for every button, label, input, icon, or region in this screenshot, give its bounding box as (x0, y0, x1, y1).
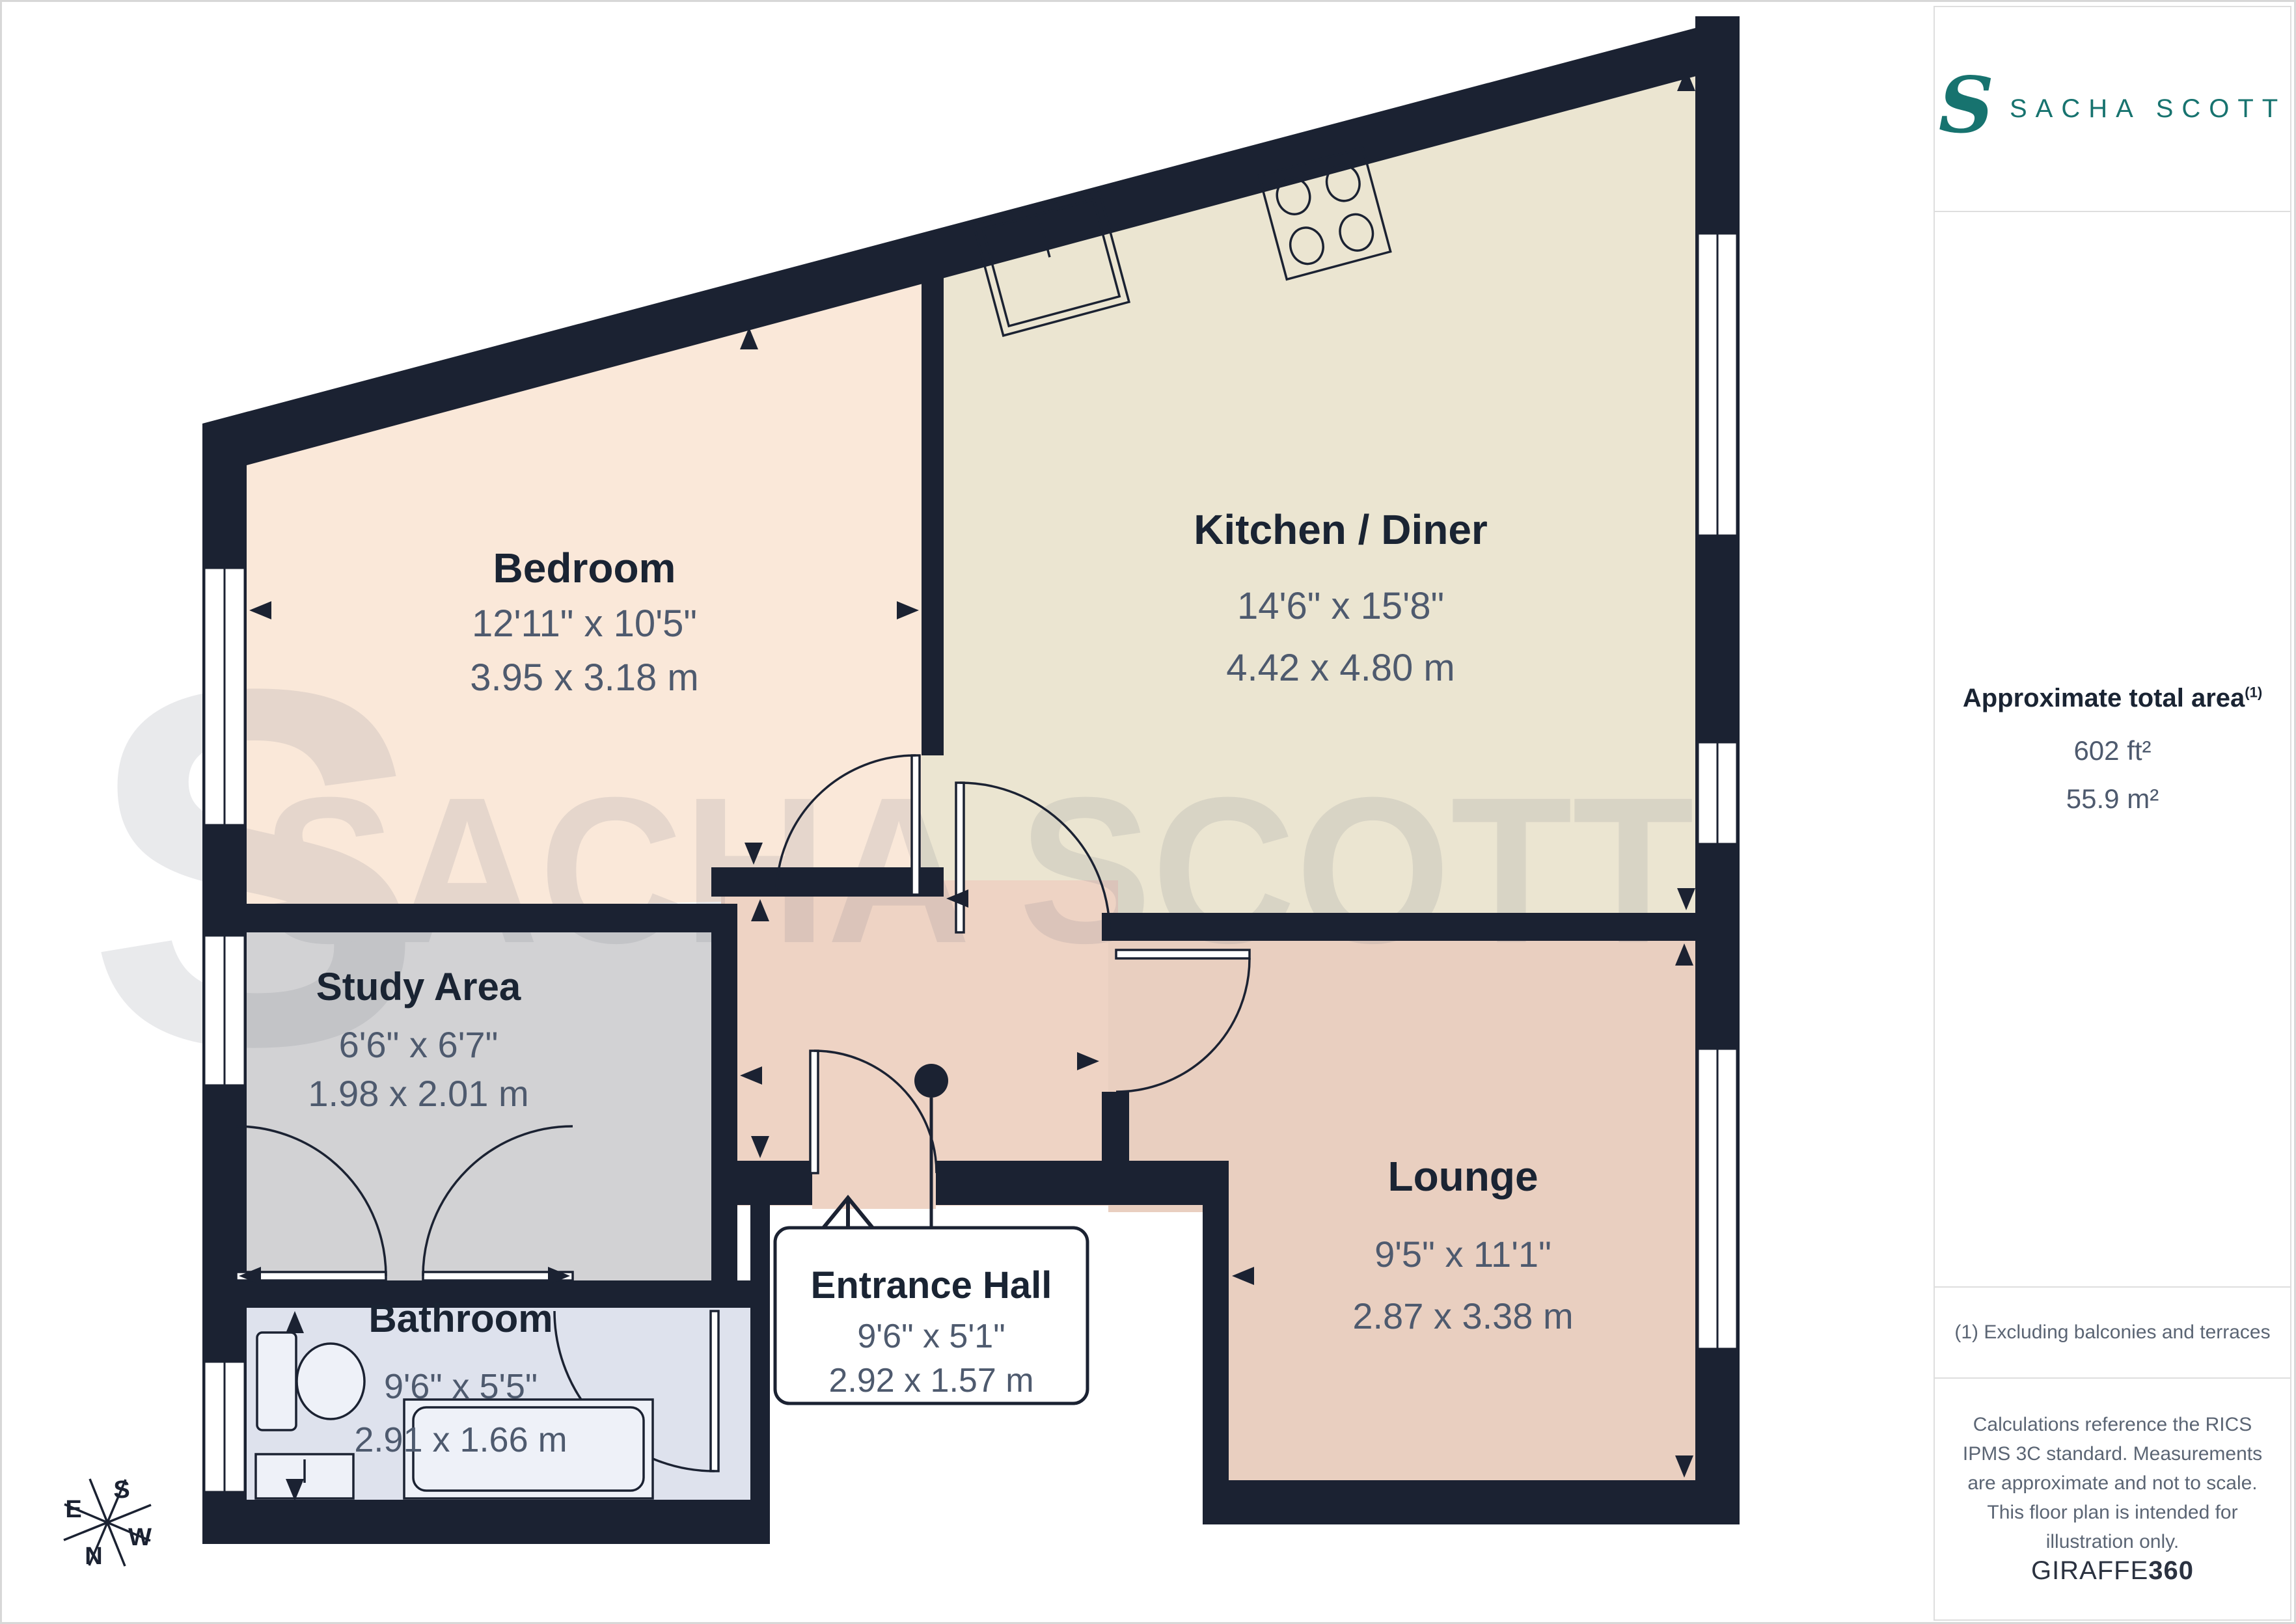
study-dims-imperial: 6'6" x 6'7" (339, 1024, 499, 1065)
window-bedroom (204, 568, 245, 825)
entrance-hall-dims-imperial: 9'6" x 5'1" (857, 1318, 1005, 1355)
compass-east-label: E (65, 1496, 81, 1523)
wall-bottom-bathroom (202, 1500, 770, 1544)
bathroom-label: Bathroom (368, 1297, 553, 1340)
bathroom-dims-metric: 2.91 x 1.66 m (354, 1420, 567, 1459)
compass-west-label: W (128, 1524, 152, 1551)
lounge-dims-imperial: 9'5" x 11'1" (1374, 1234, 1551, 1275)
floor-plan: S SACHA SCOTT (2, 2, 1935, 1624)
lounge-floor (1108, 941, 1720, 1498)
compass-icon: S E W N (64, 1476, 152, 1570)
bedroom-dims-imperial: 12'11" x 10'5" (472, 602, 697, 645)
watermark-text: SACHA SCOTT (262, 753, 1694, 986)
window-lounge-right (1698, 1049, 1737, 1349)
entrance-hall-callout: Entrance Hall 9'6" x 5'1" 2.92 x 1.57 m (775, 1228, 1087, 1403)
brand-logo-text: SACHA SCOTT (2010, 94, 2286, 124)
kitchen-dims-imperial: 14'6" x 15'8" (1237, 585, 1444, 627)
info-sidebar: S SACHA SCOTT Approximate total area(1) … (1934, 6, 2291, 1621)
brand-logo-icon: S (1939, 67, 1994, 144)
window-bathroom (204, 1362, 245, 1492)
brand-logo: S SACHA SCOTT (1935, 7, 2290, 212)
total-area-metric: 55.9 m² (2066, 783, 2159, 815)
bedroom-label: Bedroom (493, 545, 676, 591)
entrance-hall-label: Entrance Hall (811, 1264, 1052, 1306)
giraffe360-brand: GIRAFFE (2031, 1556, 2148, 1585)
total-area-imperial: 602 ft² (2073, 735, 2151, 766)
hall-threshold (812, 1161, 936, 1209)
wall-lounge-lower-left (1203, 1161, 1229, 1524)
wall-study-right (711, 904, 737, 1297)
bedroom-dims-metric: 3.95 x 3.18 m (470, 656, 698, 699)
wall-lounge-left-stub (1102, 1092, 1129, 1205)
wall-bottom-lounge (1203, 1480, 1740, 1524)
kitchen-label: Kitchen / Diner (1194, 506, 1488, 553)
total-area-footnote-marker: (1) (2245, 684, 2262, 701)
giraffe360-suffix: 360 (2148, 1556, 2194, 1585)
wall-bathroom-right (750, 1205, 770, 1500)
disclaimer-block: Calculations reference the RICS IPMS 3C … (1935, 1379, 2290, 1619)
lounge-dims-metric: 2.87 x 3.38 m (1352, 1295, 1573, 1336)
window-kitchen-right-small (1698, 742, 1737, 844)
floorplan-page: S SACHA SCOTT (0, 0, 2296, 1624)
wall-bedroom-kitchen (922, 267, 944, 755)
total-area-block: Approximate total area(1) 602 ft² 55.9 m… (1935, 212, 2290, 1288)
window-study (204, 936, 245, 1085)
study-label: Study Area (316, 965, 521, 1008)
wall-bedroom-hall (711, 867, 944, 897)
entrance-hall-dims-metric: 2.92 x 1.57 m (828, 1362, 1033, 1400)
wall-hall-bottom-right (936, 1161, 1229, 1205)
footnote-block: (1) Excluding balconies and terraces (1935, 1288, 2290, 1379)
compass-south-label: S (113, 1476, 130, 1504)
total-area-title: Approximate total area(1) (1963, 684, 2262, 713)
compass-north-label: N (85, 1543, 102, 1570)
window-kitchen-right (1698, 234, 1737, 535)
bathroom-sink-icon (256, 1454, 353, 1498)
wall-bedroom-study (202, 904, 737, 932)
camera-point (914, 1064, 948, 1098)
bathroom-dims-imperial: 9'6" x 5'5" (384, 1367, 538, 1406)
kitchen-dims-metric: 4.42 x 4.80 m (1226, 647, 1455, 689)
lounge-label: Lounge (1387, 1153, 1538, 1200)
study-dims-metric: 1.98 x 2.01 m (308, 1073, 528, 1114)
giraffe360-credit: GIRAFFE360 (2031, 1556, 2194, 1586)
wall-kitchen-bottom (1102, 913, 1695, 941)
footnote-text: (1) Excluding balconies and terraces (1954, 1321, 2270, 1344)
total-area-title-text: Approximate total area (1963, 684, 2245, 712)
disclaimer-text: Calculations reference the RICS IPMS 3C … (1960, 1410, 2265, 1556)
